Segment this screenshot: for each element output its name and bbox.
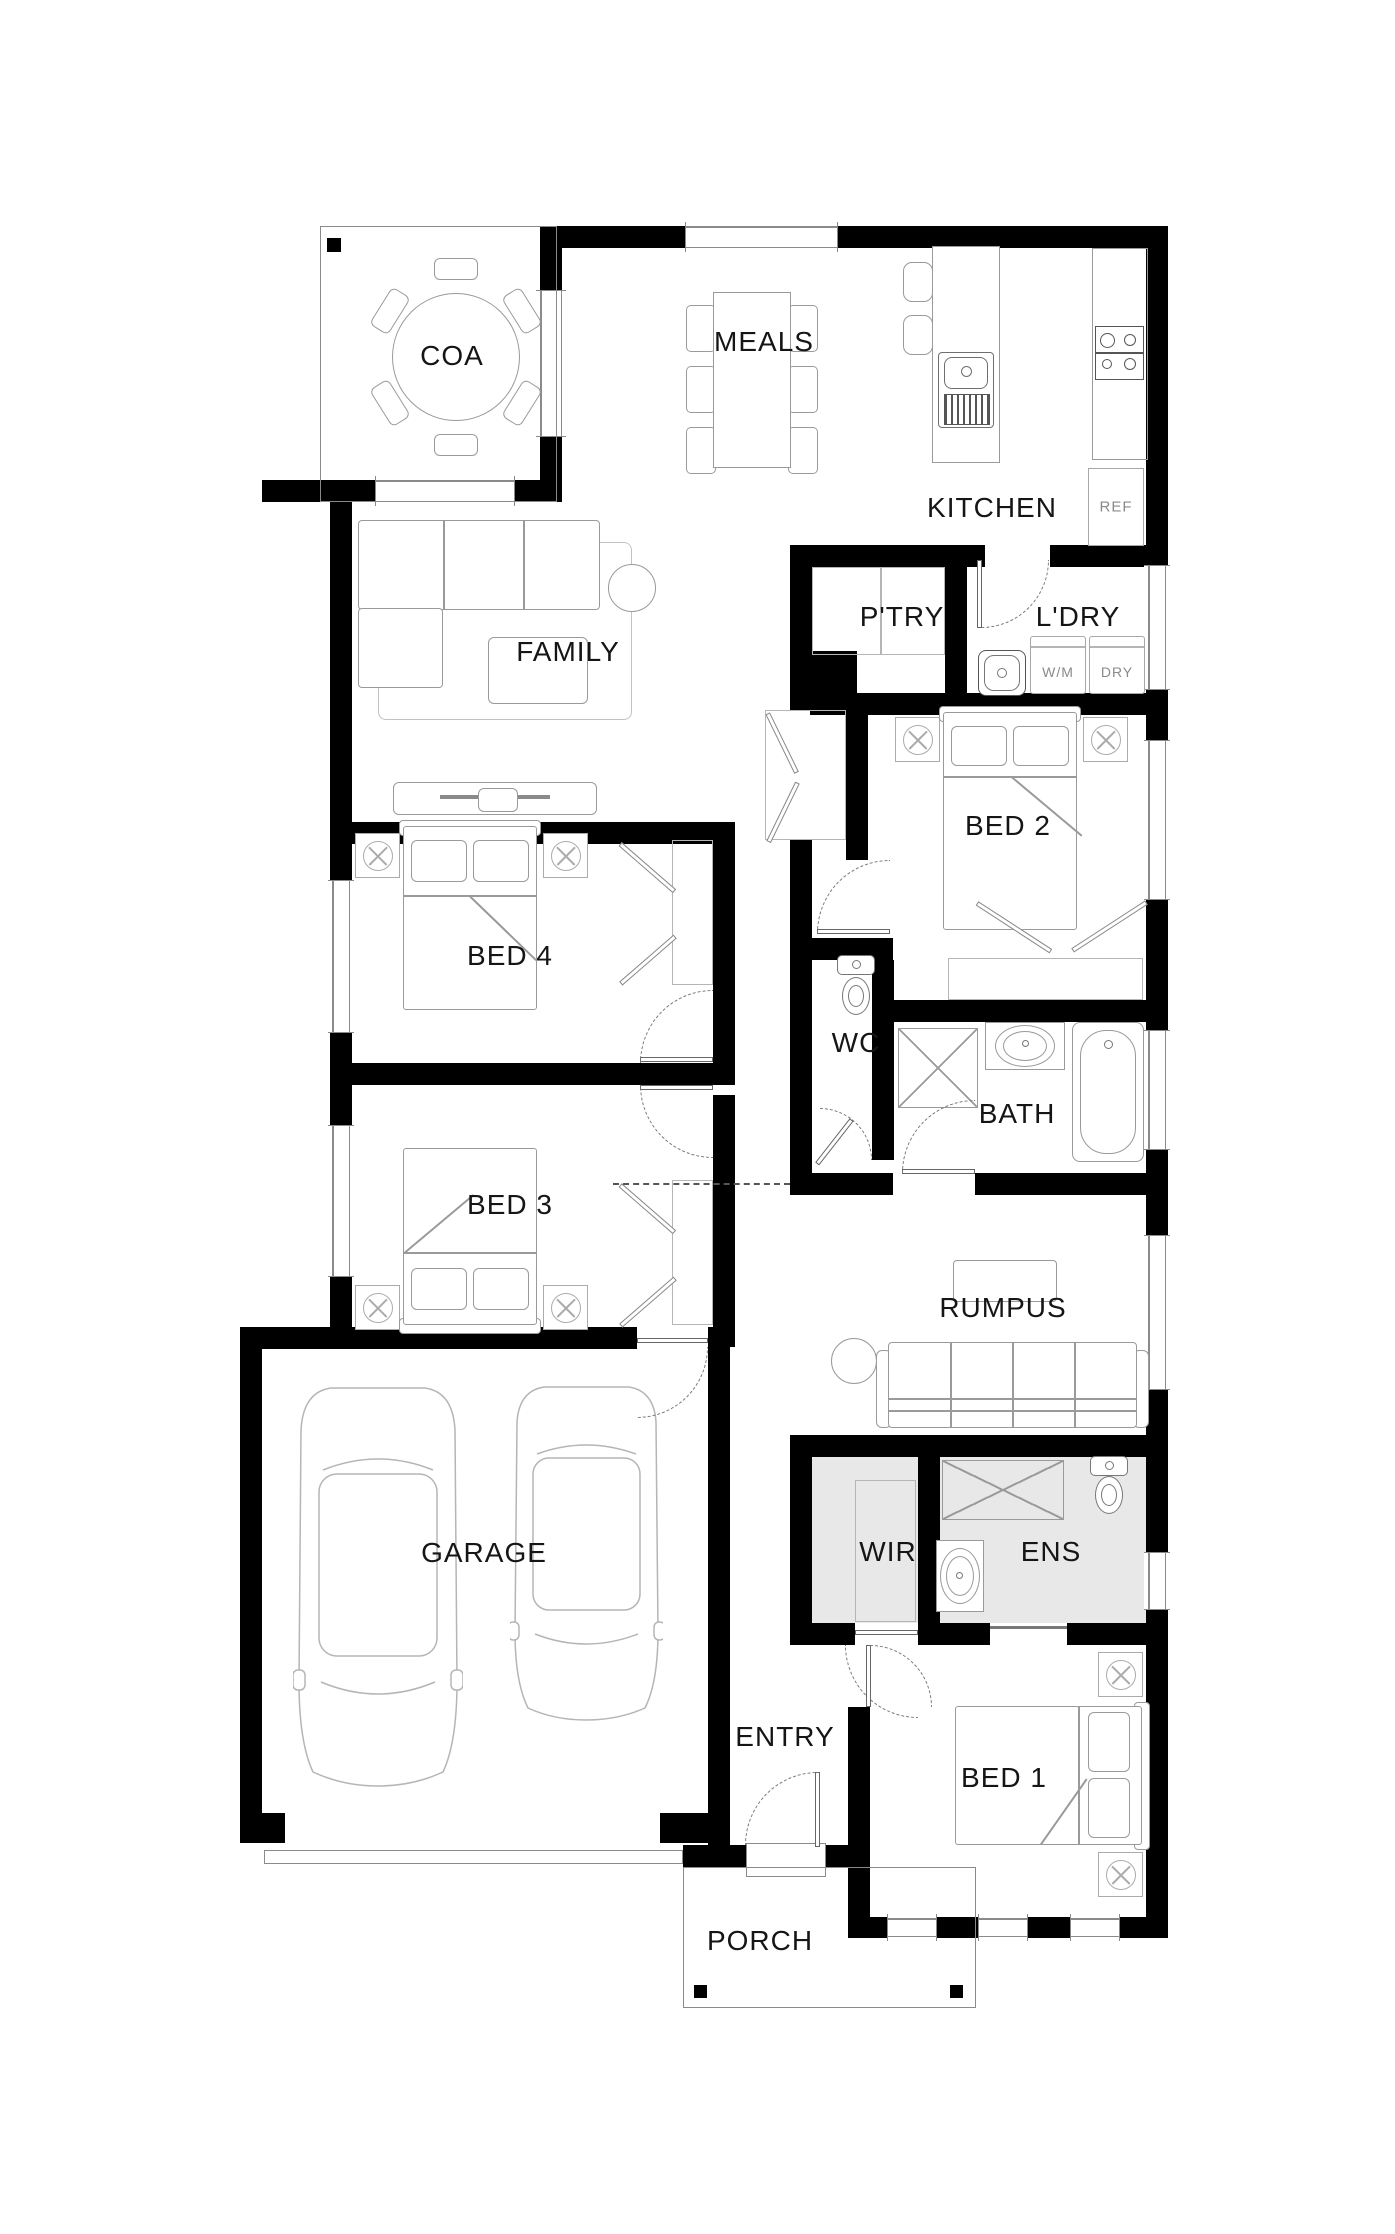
wall: [1146, 226, 1168, 565]
wall: [790, 545, 985, 567]
room-label-bed1: BED 1: [961, 1762, 1047, 1794]
ens-shower: [942, 1460, 1064, 1520]
wall: [894, 1000, 1146, 1022]
pillow: [411, 840, 467, 882]
sofa-cushion-line: [950, 1343, 952, 1427]
stool: [903, 315, 933, 355]
ens-sliding-door: [990, 1626, 1067, 1629]
window: [1144, 1030, 1170, 1150]
ens-basin-tap: [956, 1572, 963, 1579]
wall: [240, 1813, 285, 1843]
window: [328, 880, 354, 1033]
wall: [812, 651, 857, 693]
wm-panel-line: [1031, 646, 1085, 648]
window: [328, 1125, 354, 1277]
basin-tap: [1022, 1040, 1029, 1047]
room-label-kitchen: KITCHEN: [927, 492, 1057, 524]
wall: [330, 1033, 352, 1125]
wall: [945, 567, 967, 693]
wall: [790, 840, 812, 938]
wall: [975, 1173, 1146, 1195]
window: [1144, 565, 1170, 690]
window: [978, 1914, 1028, 1941]
sofa-cushion-line: [1012, 1343, 1014, 1427]
side-table: [608, 564, 656, 612]
sheet-line: [1078, 1707, 1080, 1844]
bedside-marker: [543, 1285, 588, 1330]
robe-shelf: [672, 840, 713, 985]
room-label-ldry: L'DRY: [1036, 601, 1121, 633]
room-label-bed2: BED 2: [965, 810, 1051, 842]
room-label-meals: MEALS: [714, 326, 814, 358]
garage-entry-door-swing: [637, 1347, 708, 1418]
wall: [790, 1435, 1146, 1457]
wall: [708, 1327, 730, 1867]
burner: [1102, 359, 1112, 369]
post: [327, 238, 341, 252]
opening-line: [613, 1183, 790, 1185]
sofa-cushion-line: [443, 521, 445, 609]
pillow: [473, 840, 529, 882]
porch-post: [950, 1985, 963, 1998]
sofa: [358, 520, 600, 610]
bed2-door-swing: [817, 860, 890, 933]
wall: [240, 1327, 262, 1843]
pillow: [951, 726, 1007, 766]
wall: [540, 226, 1168, 248]
toilet-button: [852, 960, 861, 969]
bedside-marker: [895, 717, 940, 762]
wall: [1146, 900, 1168, 1030]
room-label-bed3: BED 3: [467, 1189, 553, 1221]
chair: [788, 427, 818, 474]
sofa-chaise: [358, 608, 443, 688]
robe-shelf: [948, 958, 1143, 1000]
tub-drain: [997, 668, 1007, 678]
shower: [898, 1028, 978, 1108]
side-table: [831, 1338, 877, 1384]
garage-entry-door-leaf: [637, 1338, 708, 1343]
wall: [1146, 1150, 1168, 1235]
pillow: [411, 1268, 467, 1310]
room-label-porch: PORCH: [707, 1925, 813, 1957]
garage-door-panel: [264, 1850, 683, 1864]
chair: [434, 258, 478, 280]
wall: [790, 938, 812, 1173]
chair: [686, 305, 716, 352]
tv: [478, 788, 518, 812]
room-label-wir: WIR: [859, 1536, 916, 1568]
window: [1144, 740, 1170, 900]
wall: [352, 1063, 735, 1085]
robe-bifold-door: [619, 1277, 677, 1328]
dryer-panel-line: [1090, 646, 1144, 648]
sofa-cushion-line: [1074, 1343, 1076, 1427]
burner: [1124, 358, 1136, 370]
wall: [1146, 690, 1168, 740]
pillow: [473, 1268, 529, 1310]
sink-tap: [961, 366, 972, 377]
porch-post: [694, 1985, 707, 1998]
room-label-garage: GARAGE: [421, 1537, 547, 1569]
window: [685, 222, 838, 252]
robe-bifold-door: [619, 935, 677, 986]
wall: [1050, 545, 1146, 567]
bath-drain: [1104, 1040, 1113, 1049]
wall: [1067, 1623, 1146, 1645]
wir-door-leaf: [855, 1630, 918, 1635]
chair: [434, 434, 478, 456]
toilet-bowl-inner: [848, 985, 864, 1007]
room-label-wc: WC: [832, 1027, 881, 1059]
wall: [790, 1623, 855, 1645]
wc-door-swing: [820, 1108, 872, 1160]
wall: [790, 1173, 893, 1195]
bedside-marker: [1083, 717, 1128, 762]
chair: [788, 366, 818, 413]
wall: [846, 715, 868, 860]
robe-bifold-door: [1071, 900, 1148, 952]
wall: [790, 545, 812, 710]
dining-table: [713, 292, 791, 468]
sink-drainer: [944, 394, 990, 425]
bed1-door-swing: [870, 1645, 932, 1707]
ens-toilet-button: [1105, 1461, 1114, 1470]
burner: [1124, 334, 1136, 346]
bath-door-swing: [902, 1100, 975, 1173]
bedside-marker: [1098, 1652, 1143, 1697]
wall: [790, 1435, 812, 1645]
robe-bifold-door: [619, 842, 677, 893]
robe-bifold-door: [619, 1183, 677, 1234]
sofa-back-line: [889, 1410, 1136, 1412]
bedside-marker: [543, 833, 588, 878]
sofa-back-line: [889, 1398, 1136, 1400]
window: [1070, 1914, 1120, 1941]
chair: [686, 427, 716, 474]
room-label-ptry: P'TRY: [860, 601, 945, 633]
washing-machine-label: W/M: [1042, 664, 1074, 680]
sheet-line: [404, 1252, 536, 1254]
floor-plan: COA MEALS KITCHEN P'TRY L'DRY FAMILY BED…: [0, 0, 1395, 2234]
ens-toilet-bowl-inner: [1101, 1484, 1117, 1506]
room-label-ens: ENS: [1021, 1536, 1082, 1568]
chair: [686, 366, 716, 413]
cooktop-divider: [1096, 352, 1143, 354]
bedside-marker: [1098, 1852, 1143, 1897]
room-label-bed4: BED 4: [467, 940, 553, 972]
wall: [940, 1623, 990, 1645]
room-label-coa: COA: [420, 340, 484, 372]
stool: [903, 262, 933, 302]
pillow: [1013, 726, 1069, 766]
dryer-label: DRY: [1101, 664, 1133, 680]
window: [1144, 1552, 1170, 1610]
room-label-bath: BATH: [979, 1098, 1056, 1130]
bedside-marker: [355, 1285, 400, 1330]
robe-shelf: [672, 1180, 713, 1325]
car: [293, 1382, 463, 1790]
pillow: [1088, 1712, 1130, 1772]
bed3-door-swing: [640, 1085, 713, 1158]
bed4-door-swing: [640, 990, 713, 1063]
room-label-family: FAMILY: [516, 636, 620, 668]
room-label-entry: ENTRY: [735, 1721, 834, 1753]
sofa-cushion-line: [523, 521, 525, 609]
wall: [1146, 1390, 1168, 1552]
wall: [683, 1845, 750, 1867]
burner: [1100, 333, 1115, 348]
front-door-swing: [745, 1772, 818, 1845]
bedside-marker: [355, 833, 400, 878]
wall: [330, 1277, 352, 1327]
pillow: [1088, 1778, 1130, 1838]
wall: [713, 1095, 735, 1347]
wall: [713, 822, 735, 1063]
room-label-rumpus: RUMPUS: [939, 1292, 1066, 1324]
fridge-label: REF: [1100, 499, 1133, 516]
wall: [872, 960, 894, 1160]
